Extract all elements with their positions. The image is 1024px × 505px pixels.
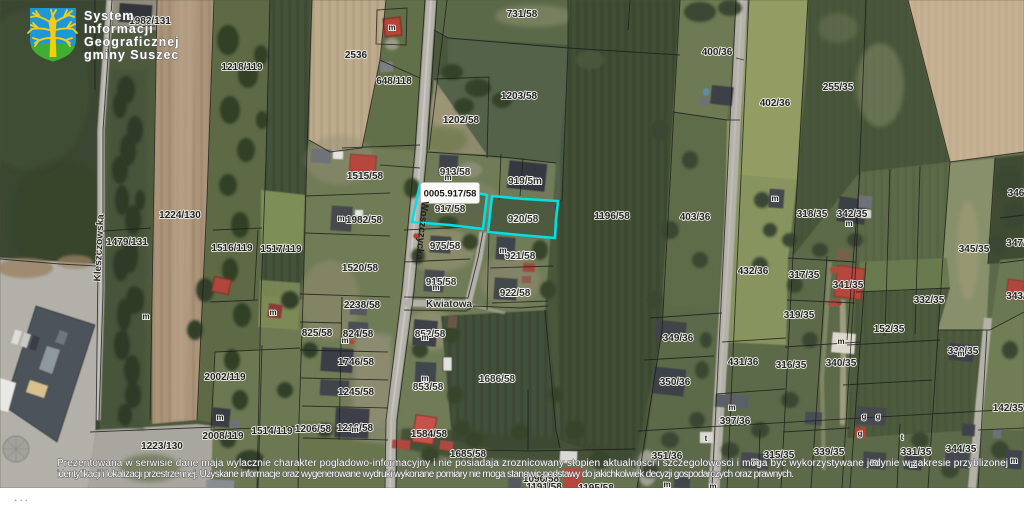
svg-text:1515/58: 1515/58 bbox=[347, 171, 384, 182]
svg-text:317/35: 317/35 bbox=[789, 270, 820, 281]
svg-text:731/58: 731/58 bbox=[507, 9, 538, 20]
svg-text:Kwiatowa: Kwiatowa bbox=[426, 299, 473, 310]
svg-text:1516/119: 1516/119 bbox=[211, 243, 253, 254]
svg-text:922/58: 922/58 bbox=[500, 288, 531, 299]
svg-text:1517/119: 1517/119 bbox=[260, 244, 302, 255]
svg-text:System: System bbox=[84, 9, 134, 23]
svg-text:1245/58: 1245/58 bbox=[338, 387, 375, 398]
svg-text:m: m bbox=[421, 333, 428, 342]
svg-text:1202/58: 1202/58 bbox=[443, 115, 480, 126]
svg-text:2536: 2536 bbox=[345, 50, 368, 61]
svg-text:1206/58: 1206/58 bbox=[295, 424, 332, 435]
svg-text:0005.917/58: 0005.917/58 bbox=[424, 189, 477, 200]
svg-text:345/35: 345/35 bbox=[959, 244, 990, 255]
svg-text:339/35: 339/35 bbox=[814, 447, 845, 458]
svg-text:344/35: 344/35 bbox=[946, 444, 977, 455]
svg-text:m: m bbox=[728, 403, 735, 412]
svg-text:400/36: 400/36 bbox=[702, 47, 733, 58]
svg-text:316/35: 316/35 bbox=[776, 360, 807, 371]
svg-text:m: m bbox=[388, 23, 395, 32]
svg-text:m: m bbox=[341, 336, 348, 345]
svg-text:1746/58: 1746/58 bbox=[338, 357, 375, 368]
svg-text:975/58: 975/58 bbox=[430, 241, 461, 252]
svg-text:397/36: 397/36 bbox=[720, 416, 751, 427]
svg-text:341/35: 341/35 bbox=[833, 280, 864, 291]
svg-text:255/35: 255/35 bbox=[823, 82, 854, 93]
svg-text:m: m bbox=[499, 246, 506, 255]
svg-text:m: m bbox=[837, 337, 844, 346]
svg-text:152/35: 152/35 bbox=[874, 324, 905, 335]
svg-text:m: m bbox=[216, 413, 223, 422]
svg-text:319/35: 319/35 bbox=[784, 310, 815, 321]
svg-text:142/35: 142/35 bbox=[993, 403, 1024, 414]
svg-text:853/58: 853/58 bbox=[413, 382, 444, 393]
svg-text:1218/119: 1218/119 bbox=[221, 62, 263, 73]
svg-text:1196/58: 1196/58 bbox=[594, 211, 630, 222]
svg-text:m: m bbox=[337, 214, 344, 223]
svg-text:g: g bbox=[876, 412, 881, 421]
svg-text:...: ... bbox=[14, 490, 30, 504]
svg-text:g: g bbox=[858, 429, 863, 438]
svg-text:m: m bbox=[1010, 456, 1017, 465]
svg-text:332/35: 332/35 bbox=[914, 295, 945, 306]
svg-text:1982/58: 1982/58 bbox=[346, 215, 383, 226]
svg-text:343/: 343/ bbox=[1006, 291, 1024, 302]
svg-text:m: m bbox=[845, 219, 852, 228]
svg-text:Informacji: Informacji bbox=[84, 22, 154, 36]
svg-text:identyfikacji i lokalizacji pr: identyfikacji i lokalizacji przestrzenne… bbox=[57, 469, 794, 480]
svg-text:1520/58: 1520/58 bbox=[342, 263, 379, 274]
svg-text:1223/130: 1223/130 bbox=[141, 441, 183, 452]
svg-text:919/5m: 919/5m bbox=[508, 176, 542, 187]
svg-text:m: m bbox=[771, 194, 778, 203]
svg-text:m: m bbox=[142, 312, 149, 321]
svg-text:1584/58: 1584/58 bbox=[411, 429, 448, 440]
svg-text:2002/119: 2002/119 bbox=[204, 372, 246, 383]
svg-text:917/58: 917/58 bbox=[435, 204, 466, 215]
svg-text:648/118: 648/118 bbox=[376, 76, 412, 87]
svg-text:1224/130: 1224/130 bbox=[159, 210, 201, 221]
svg-text:921/58: 921/58 bbox=[505, 251, 536, 262]
svg-text:920/58: 920/58 bbox=[508, 214, 539, 225]
svg-text:m: m bbox=[351, 425, 358, 434]
svg-text:852/58: 852/58 bbox=[415, 329, 446, 340]
svg-text:m: m bbox=[957, 349, 964, 358]
svg-text:Geograficznej: Geograficznej bbox=[84, 35, 180, 49]
svg-text:347/: 347/ bbox=[1006, 238, 1024, 249]
svg-text:m: m bbox=[269, 308, 276, 317]
svg-text:349/36: 349/36 bbox=[663, 333, 694, 344]
svg-text:346: 346 bbox=[1008, 188, 1024, 199]
svg-text:318/35: 318/35 bbox=[797, 209, 828, 220]
svg-text:Prezentowana w serwisie dane m: Prezentowana w serwisie dane maja wylacz… bbox=[57, 458, 1008, 469]
svg-text:1203/58: 1203/58 bbox=[501, 91, 538, 102]
svg-text:2008/119: 2008/119 bbox=[202, 431, 244, 442]
svg-text:m: m bbox=[432, 283, 439, 292]
svg-text:m: m bbox=[421, 374, 428, 383]
svg-text:m: m bbox=[663, 480, 670, 489]
svg-text:331/35: 331/35 bbox=[901, 447, 932, 458]
svg-text:915/58: 915/58 bbox=[426, 277, 457, 288]
svg-text:1514/119: 1514/119 bbox=[251, 426, 293, 437]
svg-text:1686/58: 1686/58 bbox=[479, 374, 516, 385]
svg-text:825/58: 825/58 bbox=[302, 328, 333, 339]
svg-text:403/36: 403/36 bbox=[680, 212, 711, 223]
svg-text:350/36: 350/36 bbox=[660, 377, 691, 388]
svg-text:431/36: 431/36 bbox=[728, 357, 759, 368]
svg-text:g: g bbox=[862, 412, 867, 421]
svg-text:402/36: 402/36 bbox=[760, 98, 791, 109]
svg-text:1479/131: 1479/131 bbox=[106, 237, 148, 248]
svg-text:gminy Suszec: gminy Suszec bbox=[84, 48, 179, 62]
svg-text:t: t bbox=[901, 433, 904, 442]
svg-text:432/36: 432/36 bbox=[738, 266, 769, 277]
svg-text:m: m bbox=[444, 173, 451, 182]
svg-text:t: t bbox=[705, 434, 708, 443]
svg-text:340/35: 340/35 bbox=[826, 358, 857, 369]
svg-text:2238/58: 2238/58 bbox=[344, 300, 381, 311]
